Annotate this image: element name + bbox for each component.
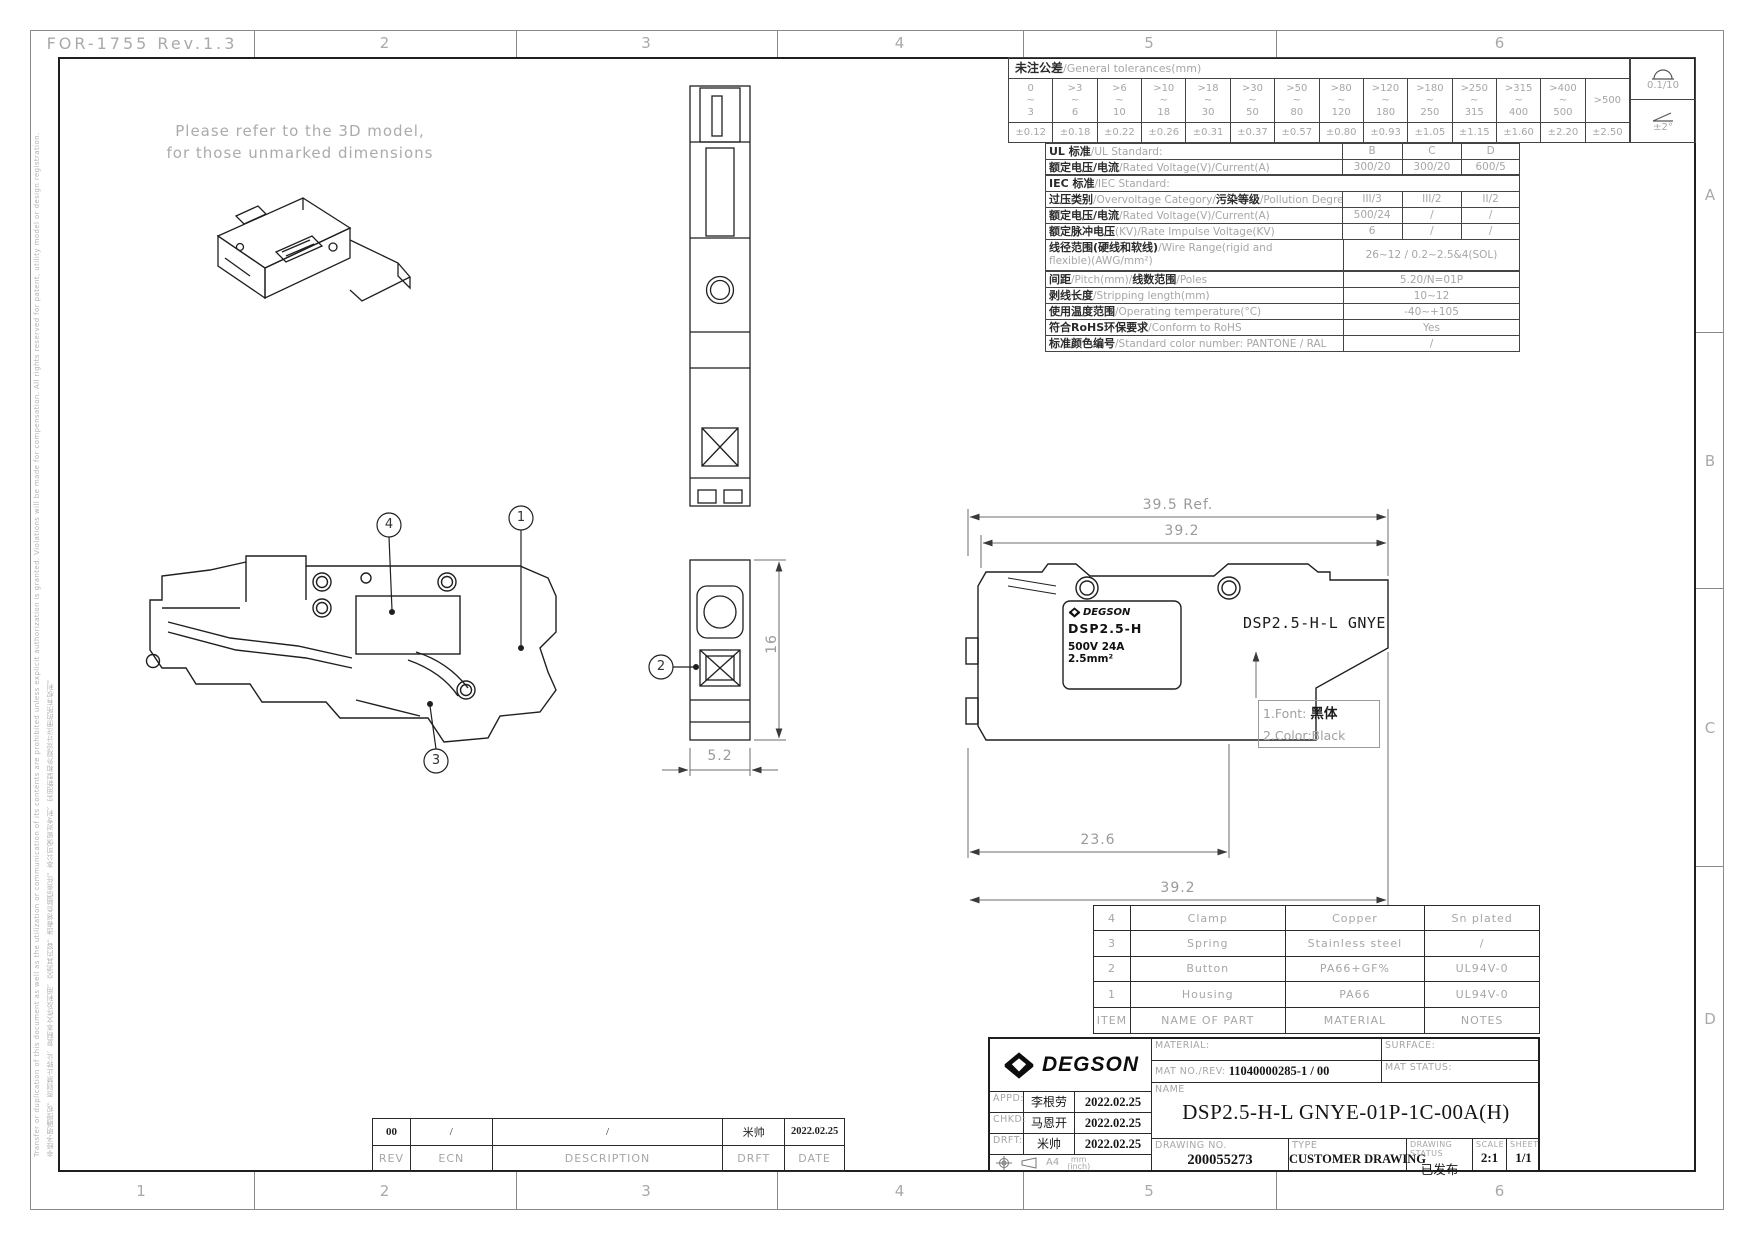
degson-logo-icon-small: [1068, 606, 1081, 619]
parts-header-row: ITEMNAME OF PARTMATERIALNOTES: [1094, 1008, 1539, 1033]
spec-row-pitch: 间距/Pitch(mm)/线数范围/Poles 5.20/N=01P: [1045, 272, 1520, 288]
spec-table: UL 标准/UL Standard: BCD 额定电压/电流/Rated Vol…: [1045, 143, 1520, 352]
dim-front-width: 23.6: [1066, 832, 1130, 848]
appd-label-cell: APPD:: [990, 1092, 1024, 1113]
spec-row-rohs: 符合RoHS环保要求/Conform to RoHS Yes: [1045, 320, 1520, 336]
grid-col-bot-5: 5: [1024, 1172, 1277, 1210]
title-block: DEGSON APPD: 李根劳 2022.02.25 CHKD: 马恩开 20…: [988, 1037, 1540, 1172]
scale-cell: SCALE 2:1: [1473, 1139, 1507, 1170]
tolerance-title: 未注公差/General tolerances(mm): [1008, 57, 1630, 79]
spec-row-wire-range: 线径范围(硬线和软线)/Wire Range(rigid andflexible…: [1045, 240, 1520, 272]
appd-name-cell: 李根劳: [1024, 1092, 1075, 1113]
spec-row-operating-temperature: 使用温度范围/Operating temperature(°C) -40~+10…: [1045, 304, 1520, 320]
grid-col-top-6: 6: [1277, 30, 1724, 57]
spec-row-ul-standard: UL 标准/UL Standard: BCD: [1045, 144, 1520, 160]
spec-row-iec-standard: IEC 标准/IEC Standard:: [1045, 176, 1520, 192]
balloon-4: 4: [377, 513, 401, 537]
drft-label-cell: DRFT:: [990, 1134, 1024, 1155]
surface-cell: SURFACE:: [1382, 1039, 1540, 1061]
dim-section-height: 16: [764, 630, 780, 658]
drft-name-cell: 米帅: [1024, 1134, 1075, 1155]
grid-col-bot-6: 6: [1277, 1172, 1724, 1210]
brand-wordmark: DEGSON: [1042, 1053, 1139, 1077]
product-label-rating2: 2.5mm²: [1068, 654, 1176, 666]
dim-pitch: 5.2: [700, 748, 740, 764]
product-label-brand: DEGSON: [1083, 607, 1130, 618]
grid-row-d: D: [1696, 867, 1724, 1172]
product-label: DEGSON DSP2.5-H 500V 24A 2.5mm²: [1068, 606, 1176, 666]
form-number: FOR-1755 Rev.1.3: [30, 30, 255, 57]
first-angle-projection-icon: [996, 1156, 1012, 1170]
marking-note1-label: 1.Font:: [1263, 706, 1310, 721]
grid-col-top-5: 5: [1024, 30, 1277, 57]
tolerance-symbols: 0.1/10 ±2°: [1630, 57, 1696, 143]
degson-logo-icon: [1002, 1050, 1036, 1081]
parts-row-spring: 3SpringStainless steel/: [1094, 931, 1539, 956]
grid-row-b: B: [1696, 333, 1724, 589]
grid-col-bot-3: 3: [517, 1172, 778, 1210]
sheet-number: 1/1: [1507, 1150, 1540, 1166]
marking-text: DSP2.5-H-L GNYE: [1243, 614, 1386, 632]
dim-overall-top: 39.2: [1150, 523, 1214, 539]
confidentiality-text-cn: 非经予明确授权，否则禁止转让、复制本文件及利用、交流其内容，违者将负赔偿责任。本…: [44, 57, 57, 1157]
tolerance-title-en: /General tolerances(mm): [1063, 62, 1201, 75]
part-name: DSP2.5-H-L GNYE-01P-1C-00A(H): [1152, 1100, 1540, 1125]
angle-symbol-icon: [1651, 110, 1675, 122]
name-cell: NAME DSP2.5-H-L GNYE-01P-1C-00A(H): [1152, 1083, 1540, 1139]
marking-note2: 2.Color:Black: [1263, 725, 1375, 746]
paper-size: A4: [1046, 1157, 1059, 1168]
grid-col-top-4: 4: [778, 30, 1024, 57]
parts-row-housing: 1HousingPA66UL94V-0: [1094, 982, 1539, 1007]
angle-tolerance: ±2°: [1653, 122, 1673, 133]
tolerance-ranges-row: 0~3 >3~6 >6~10 >10~18 >18~30 >30~50 >50~…: [1008, 79, 1630, 123]
revision-table: 00 / / 米帅 2022.02.25 REV ECN DESCRIPTION…: [372, 1118, 845, 1172]
drawing-status: 已发布: [1407, 1159, 1472, 1178]
drawing-number: 200055273: [1152, 1152, 1288, 1169]
grid-col-top-2: 2: [255, 30, 517, 57]
type-cell: TYPE CUSTOMER DRAWING: [1289, 1139, 1407, 1170]
sheet-cell: SHEET 1/1: [1507, 1139, 1540, 1170]
refer-3d-note-line2: for those unmarked dimensions: [150, 142, 450, 164]
refer-3d-note: Please refer to the 3D model, for those …: [150, 120, 450, 164]
mat-status-cell: MAT STATUS:: [1382, 1061, 1540, 1083]
drawing-scale: 2:1: [1473, 1150, 1506, 1166]
tolerance-values-row: ±0.12 ±0.18 ±0.22 ±0.26 ±0.31 ±0.37 ±0.5…: [1008, 123, 1630, 143]
grid-row-c: C: [1696, 589, 1724, 867]
confidentiality-text-en: Transfer or duplication of this document…: [31, 57, 44, 1157]
spec-row-stripping-length: 剥线长度/Stripping length(mm) 10~12: [1045, 288, 1520, 304]
spec-row-ul-rating: 额定电压/电流/Rated Voltage(V)/Current(A) 300/…: [1045, 160, 1520, 176]
top-grid-ruler: FOR-1755 Rev.1.3 2 3 4 5 6: [30, 30, 1724, 57]
refer-3d-note-line1: Please refer to the 3D model,: [150, 120, 450, 142]
chkd-name-cell: 马恩开: [1024, 1113, 1075, 1134]
grid-col-bot-1: 1: [30, 1172, 255, 1210]
right-grid-ruler: A B C D: [1696, 57, 1724, 1172]
dim-overall-bottom: 39.2: [1146, 880, 1210, 896]
spec-row-overvoltage: 过压类别/Overvoltage Category/污染等级/Pollution…: [1045, 192, 1520, 208]
marking-note: 1.Font: 黑体 2.Color:Black: [1258, 700, 1380, 748]
grid-col-bot-4: 4: [778, 1172, 1024, 1210]
balloon-1: 1: [509, 506, 533, 530]
units-cell: mm(inch): [1067, 1156, 1090, 1170]
spec-row-standard-color: 标准颜色编号/Standard color number: PANTONE / …: [1045, 336, 1520, 352]
flatness-symbol-icon: [1650, 67, 1676, 80]
tolerance-table: 未注公差/General tolerances(mm) 0~3 >3~6 >6~…: [1008, 57, 1696, 143]
flatness-tolerance: 0.1/10: [1647, 80, 1679, 91]
drawing-no-cell: DRAWING NO. 200055273: [1152, 1139, 1289, 1170]
drawing-type: CUSTOMER DRAWING: [1289, 1152, 1406, 1167]
cone-projection-icon: [1020, 1157, 1038, 1169]
balloon-3: 3: [424, 749, 448, 773]
grid-row-a: A: [1696, 57, 1724, 333]
parts-row-clamp: 4ClampCopperSn plated: [1094, 906, 1539, 931]
marking-note1-value: 黑体: [1310, 706, 1337, 722]
drft-date-cell: 2022.02.25: [1075, 1134, 1152, 1155]
tolerance-title-cn: 未注公差: [1015, 61, 1063, 75]
grid-col-bot-2: 2: [255, 1172, 517, 1210]
revision-header-row: REV ECN DESCRIPTION DRFT DATE: [373, 1146, 844, 1173]
parts-row-button: 2ButtonPA66+GF%UL94V-0: [1094, 957, 1539, 982]
parts-table: 4ClampCopperSn plated 3SpringStainless s…: [1093, 905, 1540, 1034]
product-label-model: DSP2.5-H: [1068, 622, 1176, 636]
spec-row-iec-rating: 额定电压/电流/Rated Voltage(V)/Current(A) 500/…: [1045, 208, 1520, 224]
appd-date-cell: 2022.02.25: [1075, 1092, 1152, 1113]
chkd-date-cell: 2022.02.25: [1075, 1113, 1152, 1134]
material-cell: MATERIAL:: [1152, 1039, 1382, 1061]
confidentiality-margin: Transfer or duplication of this document…: [31, 57, 58, 1172]
projection-row: A4 mm(inch): [990, 1155, 1152, 1170]
dim-overall-ref: 39.5 Ref.: [1128, 497, 1228, 513]
balloon-2: 2: [649, 655, 673, 679]
product-label-rating1: 500V 24A: [1068, 642, 1176, 654]
revision-entry-row: 00 / / 米帅 2022.02.25: [373, 1119, 844, 1146]
status-cell: DRAWING STATUS 已发布: [1407, 1139, 1473, 1170]
mat-no-cell: MAT NO./REV:11040000285-1 / 00: [1152, 1061, 1382, 1083]
spec-row-impulse-voltage: 额定脉冲电压(KV)/Rate Impulse Voltage(KV) 6//: [1045, 224, 1520, 240]
grid-col-top-3: 3: [517, 30, 778, 57]
logo-cell: DEGSON: [990, 1039, 1152, 1092]
chkd-label-cell: CHKD:: [990, 1113, 1024, 1134]
